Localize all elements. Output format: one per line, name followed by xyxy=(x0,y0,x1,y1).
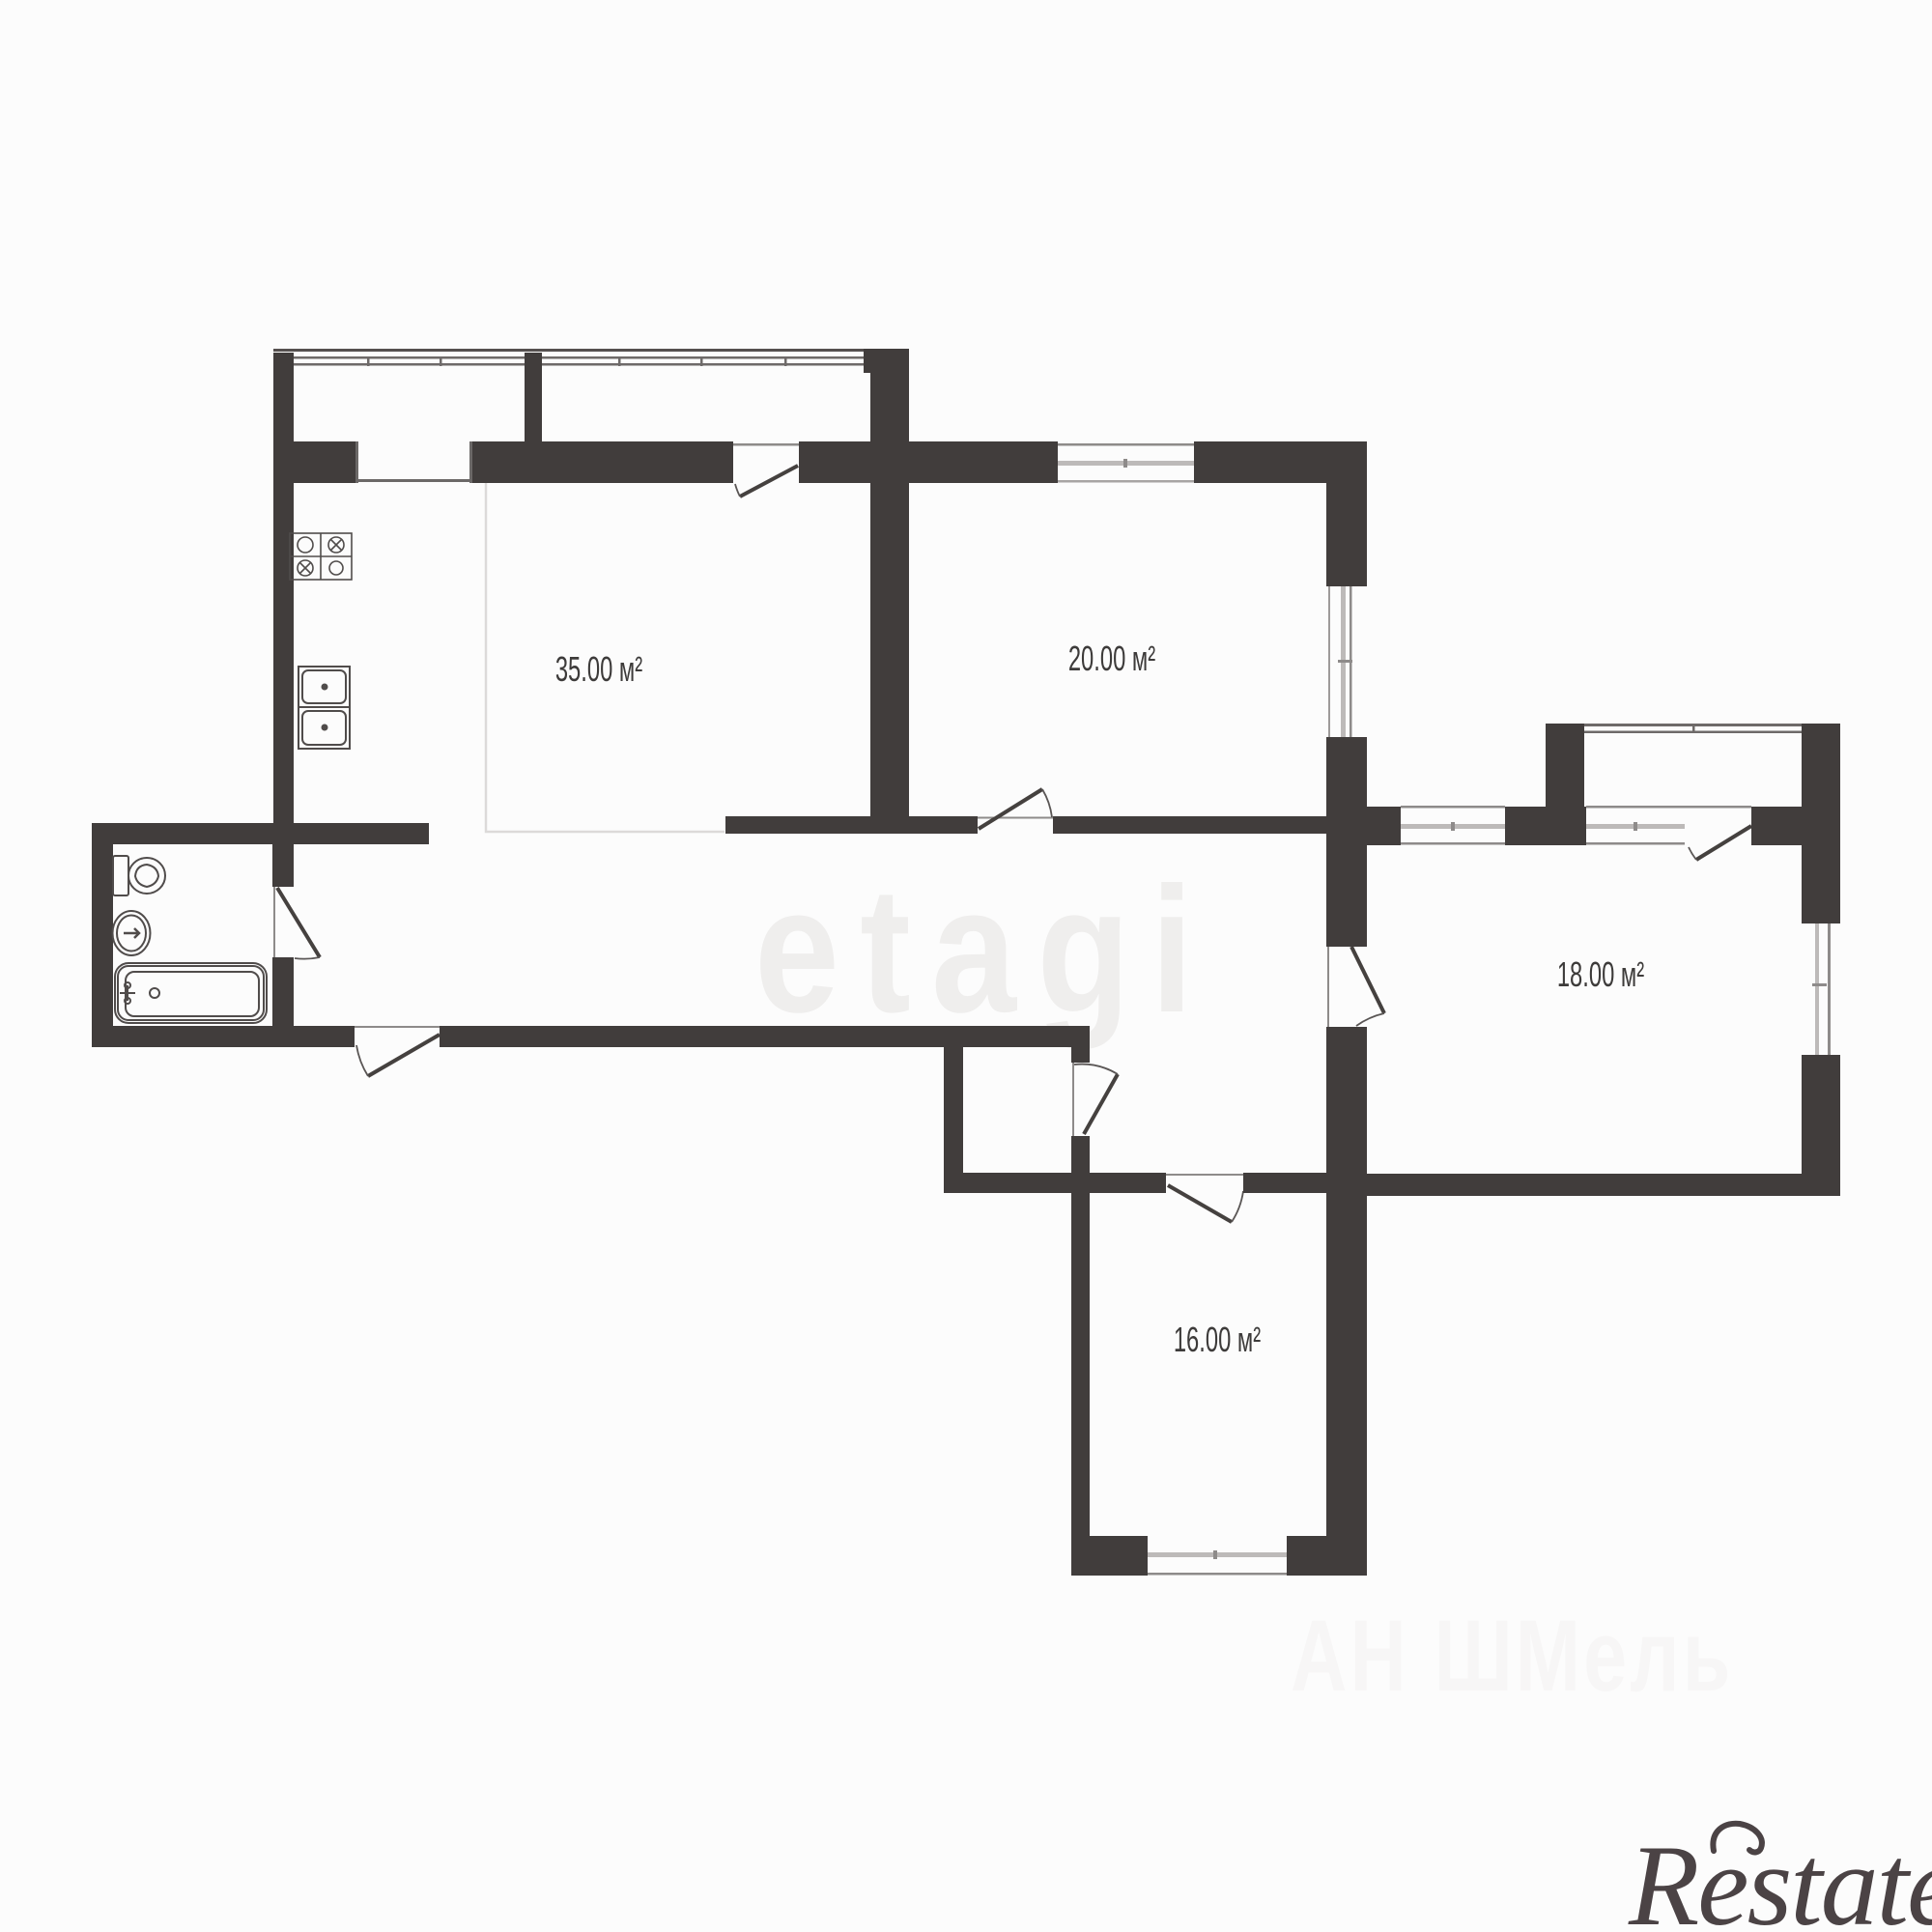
svg-text:35.00 м²: 35.00 м² xyxy=(555,650,642,689)
svg-text:etagi: etagi xyxy=(754,850,1213,1049)
svg-text:АН ШМель: АН ШМель xyxy=(1291,1599,1733,1713)
svg-text:16.00 м²: 16.00 м² xyxy=(1174,1321,1261,1359)
svg-text:Restate: Restate xyxy=(1628,1821,1932,1932)
svg-text:18.00 м²: 18.00 м² xyxy=(1557,955,1644,994)
svg-text:20.00 м²: 20.00 м² xyxy=(1068,639,1155,678)
